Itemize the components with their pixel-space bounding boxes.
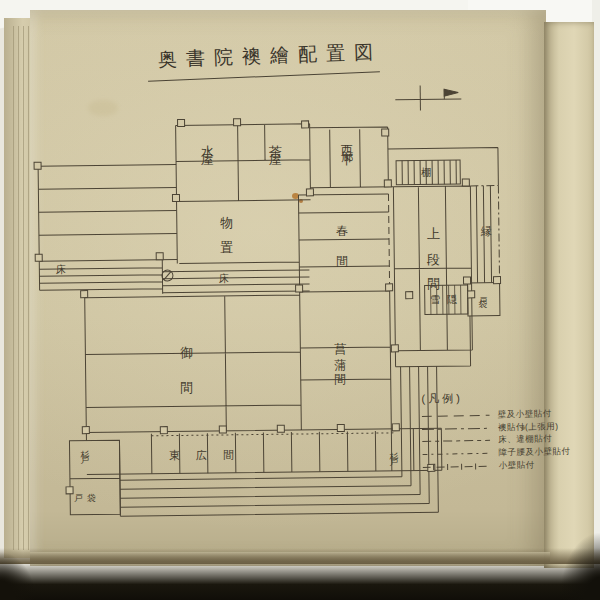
room-label-tobukuro-right: 戸袋 [478,289,487,295]
room-label-hiroma: 東広間 [169,450,250,461]
room-label-tobukuro-left: 戸袋 [74,494,100,503]
room-label-en: 縁 [481,226,492,237]
room-label-toko-left: 床 [56,265,66,275]
room-label-tana: 棚 [421,168,431,178]
legend-label: 小壁貼付 [499,459,535,472]
room-label-nishi-roka: 西廊下 [341,135,353,150]
drawing-overlay: 奥書院襖繪配置図 水屋 茶屋 西廊下 棚 上段間 縁 物置 春間 床 床 雪隠 … [0,0,600,600]
legend-label: 床、違棚貼付 [498,434,552,447]
room-label-setchin: 雪隠 [430,295,464,305]
room-label-monooki: 物置 [220,206,233,254]
room-label-sugido-left: 杉戸 [80,443,89,453]
room-label-mizuya: 水屋 [201,134,214,154]
legend-label: 障子腰及小壁貼付 [498,446,570,459]
legend-line-dash-short [422,437,490,446]
legend-line-long-dash [422,412,490,421]
floor-plan-drawing [0,0,600,600]
book-shadow [0,548,600,600]
legend-label: 襖貼付(上張用) [498,421,559,434]
legend-line-dash-dot [422,424,490,433]
room-label-toko-mid: 床 [219,274,229,284]
legend: (凡例) 壁及小壁貼付 襖貼付(上張用) 床、違棚貼付 障子腰及小壁貼付 [421,389,592,474]
scale-mark-icon [395,85,461,111]
shadow-corner [0,520,60,600]
legend-line-dash-cross [423,462,491,471]
shadow-corner [540,500,600,600]
photo-of-book: 奥書院襖繪配置図 水屋 茶屋 西廊下 棚 上段間 縁 物置 春間 床 床 雪隠 … [0,0,600,600]
room-label-on-ma: 御間 [180,336,193,408]
legend-line-short-dash-dot [422,449,490,458]
room-label-chaya: 茶屋 [269,134,282,154]
room-label-jodan-no-ma: 上段間 [427,216,440,294]
room-label-shobu-no-ma: 菖蒲間 [334,333,346,381]
legend-header: (凡例) [421,389,591,407]
room-label-sugido-right: 杉戸 [389,445,398,455]
legend-label: 壁及小壁貼付 [498,409,552,422]
room-label-haru-no-ma: 春間 [336,215,348,279]
